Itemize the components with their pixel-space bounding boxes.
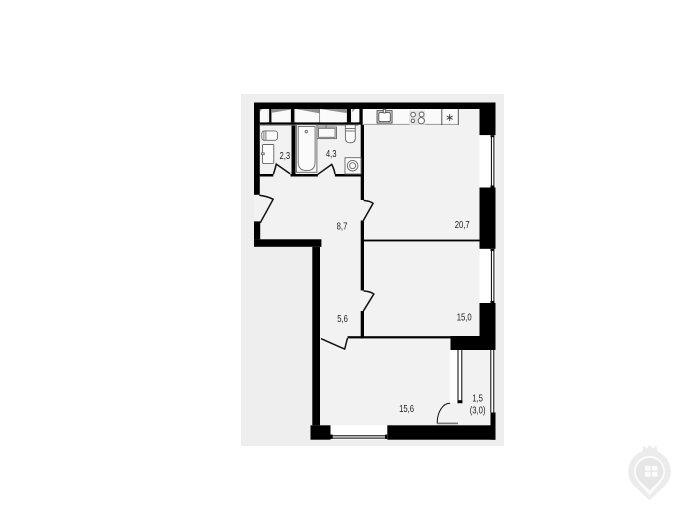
svg-text:8,7: 8,7	[337, 221, 348, 232]
svg-text:1,5: 1,5	[472, 392, 483, 403]
svg-text:5,6: 5,6	[337, 313, 348, 324]
svg-text:4,3: 4,3	[326, 148, 337, 159]
svg-text:2,3: 2,3	[279, 150, 290, 161]
svg-text:15,6: 15,6	[399, 403, 414, 414]
svg-text:(3,0): (3,0)	[470, 405, 486, 416]
svg-text:20,7: 20,7	[455, 219, 470, 230]
svg-text:15,0: 15,0	[457, 312, 472, 323]
